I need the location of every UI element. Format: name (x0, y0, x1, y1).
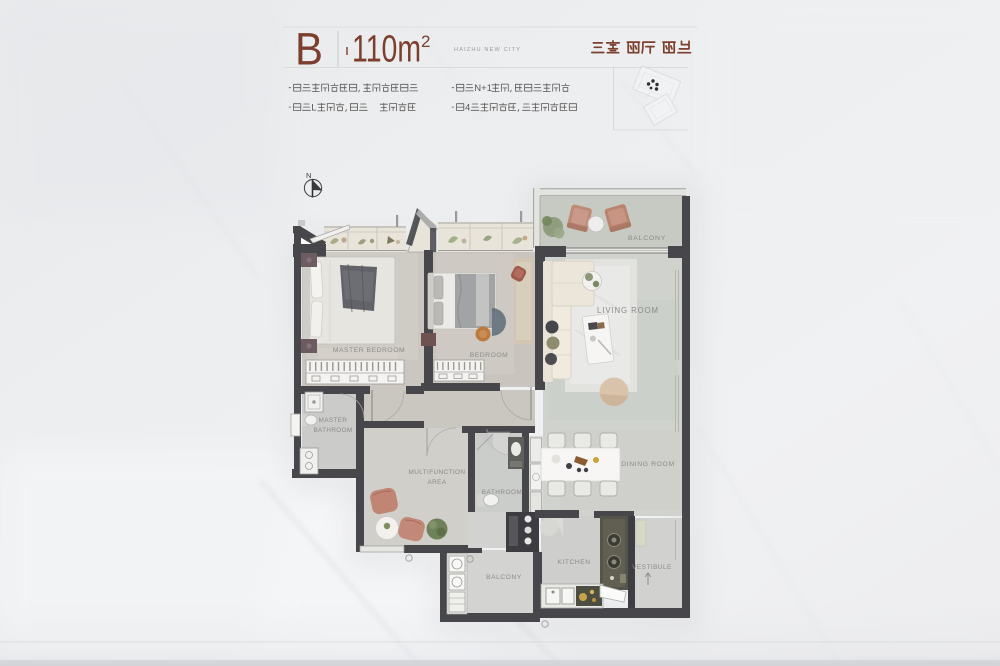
svg-text:110m: 110m (352, 29, 421, 71)
svg-text:DINING ROOM: DINING ROOM (621, 461, 674, 468)
svg-text:MULTIFUNCTION: MULTIFUNCTION (409, 469, 466, 476)
svg-text:MASTER: MASTER (319, 417, 348, 424)
svg-text:BALCONY: BALCONY (486, 574, 522, 581)
svg-text:L: L (311, 102, 316, 113)
svg-text:B: B (295, 24, 323, 75)
svg-text:BEDROOM: BEDROOM (470, 352, 509, 359)
svg-text:BATHROOM: BATHROOM (313, 427, 352, 434)
svg-text:KITCHEN: KITCHEN (557, 559, 590, 566)
svg-text:MASTER BEDROOM: MASTER BEDROOM (333, 347, 405, 354)
svg-text:VESTIBULE: VESTIBULE (632, 564, 672, 571)
svg-text:AREA: AREA (427, 479, 446, 486)
svg-text:2: 2 (421, 32, 430, 51)
svg-text:LIVING ROOM: LIVING ROOM (597, 306, 659, 315)
svg-text:N: N (306, 171, 311, 180)
svg-text:N+1: N+1 (474, 83, 492, 94)
svg-text:HAIZHU NEW CITY: HAIZHU NEW CITY (454, 47, 521, 53)
svg-text:BALCONY: BALCONY (628, 235, 666, 242)
svg-text:BATHROOM: BATHROOM (482, 489, 522, 496)
svg-text:4: 4 (465, 102, 470, 113)
